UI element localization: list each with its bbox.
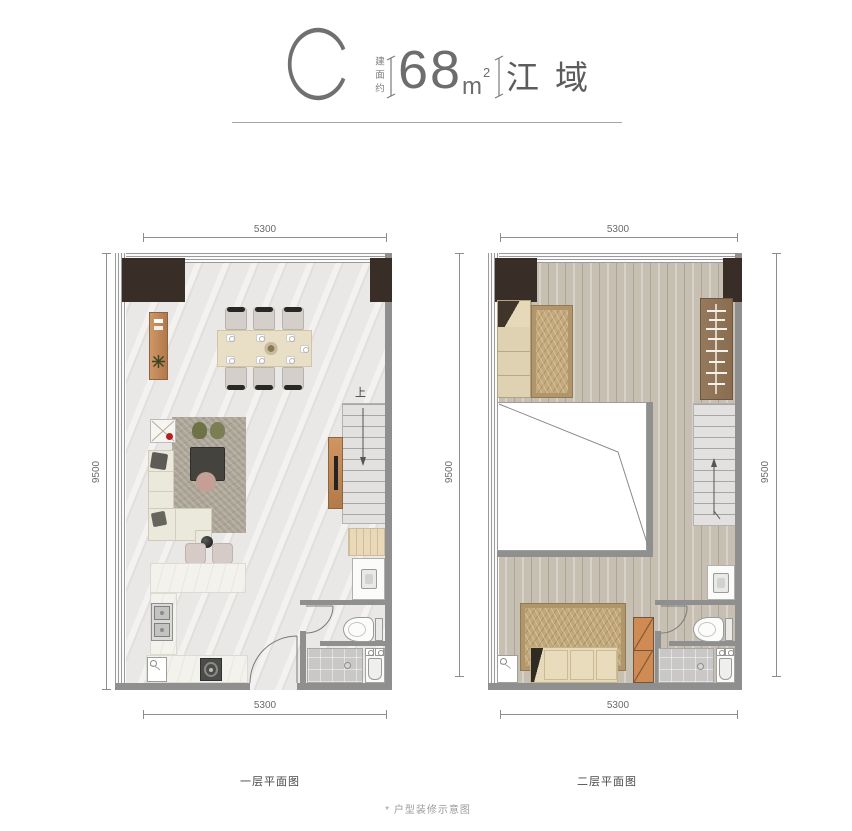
dim-width-top: 5300 [593, 224, 643, 235]
storage-cabinet [633, 617, 654, 683]
dim-tick [386, 710, 387, 719]
dim-tick [143, 233, 144, 242]
under-stair-cabinet [348, 528, 385, 556]
dining-chair [225, 307, 247, 330]
dim-line [143, 714, 387, 715]
shower-drain [697, 663, 704, 670]
decor-item [154, 319, 163, 323]
dim-tick [455, 676, 464, 677]
bed-cushion [570, 650, 594, 680]
dim-line [776, 253, 777, 677]
counter-stool [185, 543, 206, 564]
dim-tick [737, 710, 738, 719]
dim-line [143, 237, 387, 238]
dim-line [459, 253, 460, 677]
cabinet-cell [634, 650, 653, 682]
tv-screen [334, 456, 338, 490]
disclaimer-note: * 户型装修示意图 [318, 801, 538, 816]
side-tray-table [150, 419, 176, 443]
bed-seam [498, 351, 530, 352]
project-name: 江域 [506, 58, 604, 98]
plant-icon [152, 355, 165, 368]
bathroom-sink [716, 648, 735, 683]
dim-height-left: 9500 [444, 442, 456, 502]
stove [200, 658, 222, 681]
dim-tick [772, 676, 781, 677]
dim-line [500, 237, 737, 238]
shower-area [307, 648, 363, 683]
sofa-seam [175, 509, 176, 540]
dim-height-right: 9500 [760, 442, 772, 502]
wash-basin [713, 573, 729, 593]
bathroom-wall [655, 600, 742, 605]
dining-chair [225, 367, 247, 390]
bed-pillow [498, 301, 530, 327]
table-centerpiece [263, 341, 279, 356]
dim-tick [102, 689, 111, 690]
closet-block [495, 258, 537, 302]
closet-block [122, 258, 185, 302]
red-decor-dot [166, 433, 173, 440]
stairs-up-label: 上 [355, 384, 366, 400]
unit-type-letter [283, 22, 353, 106]
faucet-box [716, 648, 725, 656]
dim-width-bottom: 5300 [240, 700, 290, 711]
round-ottoman [196, 472, 216, 492]
staircase [342, 403, 385, 524]
double-bed [530, 647, 618, 683]
dim-tick [500, 710, 501, 719]
floorplan-level2 [488, 253, 742, 690]
decor-item [154, 326, 163, 330]
dim-tick [455, 253, 464, 254]
dim-width-top: 5300 [240, 224, 290, 235]
green-pouf [210, 422, 225, 439]
wall-bottom [297, 683, 392, 690]
closet-block [723, 258, 742, 302]
toilet [343, 617, 383, 642]
plate [226, 356, 235, 364]
ibeam-divider-left [386, 55, 396, 99]
bed-cushion [544, 650, 568, 680]
bathroom-vanity [707, 565, 735, 600]
sofa-seam [149, 471, 173, 472]
area-exponent: 2 [483, 66, 490, 79]
throw-pillow [150, 452, 168, 470]
wash-basin [361, 569, 377, 589]
dim-line [500, 714, 737, 715]
closet-block [370, 258, 392, 302]
sideboard [149, 312, 168, 380]
cabinet-cell [634, 618, 653, 651]
toilet-bowl [693, 617, 724, 642]
sofa-seam [149, 491, 173, 492]
dining-chair [282, 307, 304, 330]
floor2-caption: 二层平面图 [542, 773, 672, 789]
dim-tick [386, 233, 387, 242]
void-wall [497, 551, 653, 557]
bedside-rug [531, 305, 573, 398]
dim-height-left: 9500 [91, 442, 103, 502]
shower-area [658, 648, 714, 683]
window-band-left [115, 253, 126, 690]
bathroom-wall [300, 631, 306, 683]
bed-seam [498, 375, 530, 376]
faucet-box [365, 648, 374, 656]
counter-stool [212, 543, 233, 564]
area-prefix-label: 建面约 [371, 56, 385, 97]
dim-tick [143, 710, 144, 719]
plate [256, 334, 265, 342]
floorplan-level1: 上 [115, 253, 392, 690]
washing-machine [147, 657, 167, 682]
kitchen-island [150, 563, 246, 593]
sink-tub [719, 658, 732, 680]
plate [256, 356, 265, 364]
plate [286, 356, 295, 364]
toilet-tank [725, 618, 733, 641]
washing-machine [497, 655, 518, 683]
kitchen-sink [151, 603, 173, 641]
bathroom-sink [365, 648, 385, 683]
faucet-box [375, 648, 384, 656]
bathroom-wall [300, 600, 392, 605]
plate [226, 334, 235, 342]
dining-chair [253, 307, 275, 330]
wall-right [385, 253, 392, 690]
wardrobe [700, 298, 733, 400]
dim-tick [500, 233, 501, 242]
area-value: 68 [398, 43, 462, 97]
sink-bowl [154, 623, 170, 637]
plate [300, 345, 309, 353]
staircase [693, 403, 735, 526]
ibeam-divider-right [494, 55, 504, 99]
dim-width-bottom: 5300 [593, 700, 643, 711]
dining-table [217, 330, 312, 367]
area-unit: m [462, 75, 482, 99]
throw-pillow [151, 511, 167, 527]
plate [286, 334, 295, 342]
sink-tub [368, 658, 382, 680]
bed-cushion [596, 650, 617, 680]
bed-shadow [531, 648, 544, 682]
tv-cabinet [328, 437, 343, 509]
faucet-box [725, 648, 734, 656]
toilet [693, 617, 733, 642]
wall-right [735, 253, 742, 690]
dining-chair [253, 367, 275, 390]
green-pouf [192, 422, 207, 439]
floorplan-page: 建面约 68 m 2 江域 5300 5300 9500 5300 [0, 0, 852, 831]
toilet-tank [375, 618, 383, 641]
hanging-clothes-icon [701, 299, 732, 399]
shower-drain [344, 662, 351, 669]
dim-line [106, 253, 107, 690]
dim-tick [772, 253, 781, 254]
dining-chair [282, 367, 304, 390]
floor1-caption: 一层平面图 [205, 773, 335, 789]
wall-bottom [115, 683, 250, 690]
header-divider [232, 122, 622, 123]
bathroom-vanity [352, 558, 385, 600]
single-bed [497, 300, 531, 398]
toilet-bowl [343, 617, 374, 642]
dim-tick [737, 233, 738, 242]
wall-bottom [488, 683, 742, 690]
void-wall [647, 402, 653, 557]
void-opening [497, 402, 647, 551]
sink-bowl [154, 606, 170, 620]
dim-tick [102, 253, 111, 254]
